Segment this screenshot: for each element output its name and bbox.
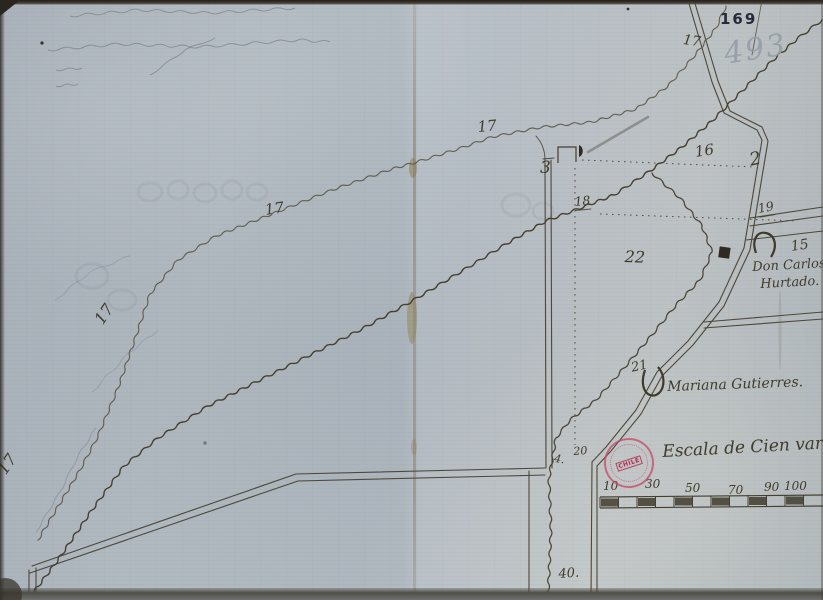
parcel-number-40: 40. xyxy=(558,567,580,581)
map-symbols xyxy=(558,145,775,396)
building-symbol xyxy=(718,246,730,258)
flag-symbol xyxy=(579,145,583,157)
map-scan: 169 493 17 17 17 17 17 3 16 2 18 19 22 1… xyxy=(0,0,823,600)
parcel-number-21: 21 xyxy=(630,359,649,375)
parcel-number-4: 4. xyxy=(553,453,565,465)
scale-bar xyxy=(600,495,823,508)
parcel-number-17: 17 xyxy=(264,200,285,218)
scale-tick-label: 100 xyxy=(784,480,807,492)
parcel-number-17: 17 xyxy=(682,33,702,49)
parcel-number-3: 3 xyxy=(540,160,551,177)
parcel-number-20: 20 xyxy=(573,445,588,457)
scale-tick-label: 90 xyxy=(764,481,779,493)
scale-tick-label: 50 xyxy=(685,482,700,494)
owner-label-line2: Hurtado. xyxy=(760,275,820,291)
enclosure-symbol xyxy=(558,147,576,163)
bleed-through-ghosts xyxy=(76,181,553,310)
map-linework xyxy=(0,0,823,600)
wavy-streams xyxy=(30,6,822,597)
parcel-number-15: 15 xyxy=(790,238,810,254)
scale-tick-label: 70 xyxy=(728,484,743,496)
parcel-number-22: 22 xyxy=(624,249,645,266)
horseshoe-symbol xyxy=(754,233,775,257)
parcel-number-19: 19 xyxy=(757,200,775,217)
parcel-number-18: 18 xyxy=(574,195,591,211)
folio-number-stamp: 169 xyxy=(720,10,757,28)
owner-label-line1: Don Carlos xyxy=(752,257,823,274)
parcel-number-16: 16 xyxy=(694,142,715,160)
parcel-number-17: 17 xyxy=(477,118,497,135)
